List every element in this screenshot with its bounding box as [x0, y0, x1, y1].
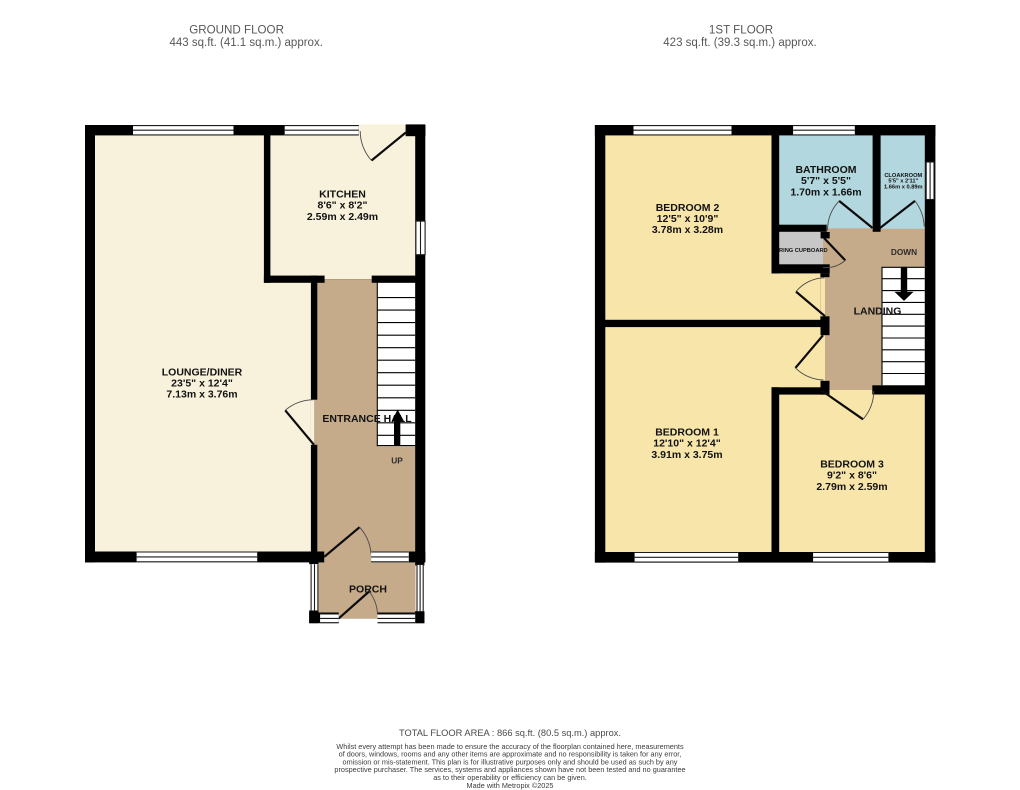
svg-text:3.78m x 3.28m: 3.78m x 3.28m: [652, 224, 723, 236]
svg-text:UP: UP: [391, 456, 403, 466]
svg-text:BEDROOM 2: BEDROOM 2: [656, 202, 720, 214]
svg-text:DOWN: DOWN: [891, 247, 917, 257]
svg-text:PORCH: PORCH: [349, 583, 387, 595]
svg-text:9'2" x 8'6": 9'2" x 8'6": [827, 470, 877, 482]
svg-text:2.59m x 2.49m: 2.59m x 2.49m: [307, 211, 378, 223]
svg-text:3.91m x 3.75m: 3.91m x 3.75m: [651, 449, 722, 461]
svg-text:1.70m x 1.66m: 1.70m x 1.66m: [790, 186, 861, 198]
svg-text:1.66m x 0.89m: 1.66m x 0.89m: [884, 184, 923, 190]
svg-text:GROUND FLOOR: GROUND FLOOR: [189, 24, 284, 37]
svg-text:TOTAL FLOOR AREA : 866 sq.ft.: TOTAL FLOOR AREA : 866 sq.ft. (80.5 sq.m…: [399, 728, 621, 738]
svg-text:KITCHEN: KITCHEN: [319, 188, 366, 200]
svg-text:BEDROOM 3: BEDROOM 3: [820, 458, 884, 470]
svg-text:LOUNGE/DINER: LOUNGE/DINER: [162, 366, 243, 378]
svg-text:7.13m x 3.76m: 7.13m x 3.76m: [166, 389, 237, 401]
svg-text:12'10" x 12'4": 12'10" x 12'4": [653, 438, 721, 450]
svg-text:443 sq.ft. (41.1 sq.m.) approx: 443 sq.ft. (41.1 sq.m.) approx.: [169, 37, 322, 49]
svg-text:1ST FLOOR: 1ST FLOOR: [709, 24, 773, 37]
svg-text:2.79m x 2.59m: 2.79m x 2.59m: [816, 481, 887, 493]
svg-text:LANDING: LANDING: [854, 306, 902, 318]
svg-text:AIRING CUPBOARD: AIRING CUPBOARD: [773, 248, 827, 254]
svg-text:BATHROOM: BATHROOM: [795, 164, 856, 176]
svg-text:Made with Metropix ©2025: Made with Metropix ©2025: [467, 781, 554, 790]
svg-text:BEDROOM 1: BEDROOM 1: [655, 426, 719, 438]
svg-text:5'7" x 5'5": 5'7" x 5'5": [801, 175, 851, 187]
svg-text:8'6" x 8'2": 8'6" x 8'2": [318, 200, 368, 212]
svg-text:423 sq.ft. (39.3 sq.m.) approx: 423 sq.ft. (39.3 sq.m.) approx.: [663, 37, 816, 49]
